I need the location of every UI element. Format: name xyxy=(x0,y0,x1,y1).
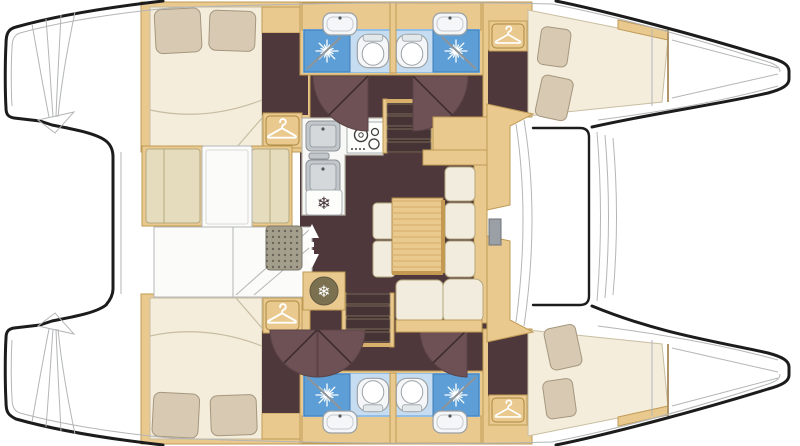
dividing-wall xyxy=(390,373,396,444)
sofa-back xyxy=(423,150,487,165)
snowflake-icon: ❄ xyxy=(317,194,331,214)
catamaran-floor-plan: ❄ xyxy=(0,0,800,446)
deck-mat-dots xyxy=(266,226,302,270)
toilet xyxy=(357,378,388,411)
saloon-table xyxy=(392,198,445,275)
snowflake-icon: ❄ xyxy=(317,282,330,301)
pillow xyxy=(154,8,202,54)
bench-cushion xyxy=(146,149,200,223)
pillow xyxy=(209,10,256,52)
pillow xyxy=(152,392,200,438)
washbasin xyxy=(323,411,357,433)
galley-sink xyxy=(306,121,340,151)
washbasin xyxy=(433,13,467,35)
dividing-wall xyxy=(390,2,396,73)
chart-cabinet xyxy=(433,117,487,153)
wardrobe xyxy=(489,21,527,51)
sofa-cushion xyxy=(445,241,475,277)
washbasin xyxy=(433,411,467,433)
pillow xyxy=(537,26,572,68)
galley-sink xyxy=(306,160,340,194)
sofa-cushion xyxy=(396,280,443,322)
washbasin xyxy=(323,13,357,35)
sofa-base xyxy=(396,320,482,332)
drainer xyxy=(309,153,329,159)
freezer: ❄ xyxy=(306,190,342,215)
lower-heads xyxy=(300,371,483,444)
toilet xyxy=(357,34,388,67)
pillow xyxy=(210,394,257,436)
upper-bow-corridor xyxy=(483,2,532,117)
toilet xyxy=(396,34,427,67)
upper-heads xyxy=(300,2,483,75)
cockpit-table xyxy=(202,146,252,228)
sliding-door-handle xyxy=(489,219,501,245)
cockpit xyxy=(142,146,319,297)
upper-aft-cabin xyxy=(141,2,310,152)
floor-plan-canvas: ❄ xyxy=(0,0,800,446)
sofa-corner-cushion xyxy=(443,279,483,323)
wardrobe xyxy=(489,395,527,425)
lower-aft-cabin xyxy=(141,294,310,444)
sofa-cushion xyxy=(445,203,475,239)
fridge: ❄ xyxy=(303,272,345,310)
pillow xyxy=(542,378,577,420)
foredeck xyxy=(487,117,800,330)
lower-bow-corridor xyxy=(483,329,532,444)
sofa-cushion xyxy=(445,167,475,201)
toilet xyxy=(396,378,427,411)
